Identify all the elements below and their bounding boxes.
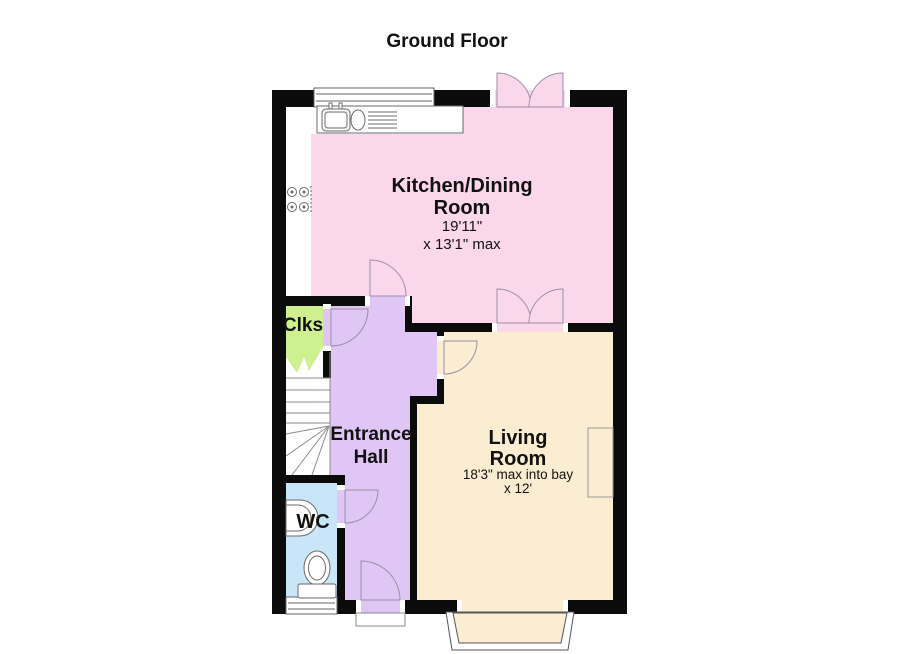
sink-drainer-icon	[317, 103, 463, 133]
page-title: Ground Floor	[386, 31, 508, 52]
french-door-right-icon	[529, 73, 563, 107]
cloakroom-label: Clks	[283, 315, 323, 336]
jamb	[337, 523, 345, 528]
jamb	[323, 346, 331, 351]
opening-cloakroom	[323, 309, 331, 346]
kitchen-label-line1: Kitchen/Dining	[391, 175, 532, 197]
jamb	[563, 323, 568, 332]
wc-window-icon	[286, 597, 337, 614]
jamb	[400, 600, 405, 614]
bay-window-icon	[446, 612, 574, 650]
floor-plan-page: Ground Floor Kitchen/Dining Room 19'11" …	[0, 0, 900, 654]
jamb	[490, 90, 495, 107]
living-label-line1: Living	[489, 427, 548, 449]
kitchen-dimensions-line1: 19'11"	[442, 218, 482, 235]
living-dimensions-line1: 18'3" max into bay	[463, 467, 573, 482]
jamb	[492, 323, 497, 332]
wc-label: WC	[296, 511, 329, 533]
opening-hall-kitchen	[370, 296, 405, 306]
opening-hall-living	[437, 341, 444, 374]
door-step-icon	[356, 613, 405, 626]
living-dimensions-line2: x 12'	[504, 481, 532, 496]
jamb	[437, 336, 444, 341]
jamb	[337, 485, 345, 490]
opening-wc	[337, 490, 345, 523]
hall-label-line2: Hall	[354, 447, 389, 468]
floor-plan-svg: Ground Floor Kitchen/Dining Room 19'11" …	[0, 0, 900, 654]
jamb	[405, 296, 410, 306]
hall-label-line1: Entrance	[330, 424, 411, 445]
jamb	[356, 600, 361, 614]
wall-left	[272, 90, 286, 614]
french-door-left-icon	[497, 73, 531, 107]
wall-right	[613, 90, 627, 614]
wall-wc-top	[286, 475, 345, 483]
opening-kitchen-living	[497, 323, 563, 332]
kitchen-dimensions-line2: x 13'1" max	[423, 236, 501, 253]
opening-front-door	[361, 600, 400, 614]
jamb	[437, 374, 444, 379]
jamb	[365, 296, 370, 306]
jamb	[565, 90, 570, 107]
jamb	[323, 304, 331, 309]
kitchen-label-line2: Room	[434, 197, 491, 219]
